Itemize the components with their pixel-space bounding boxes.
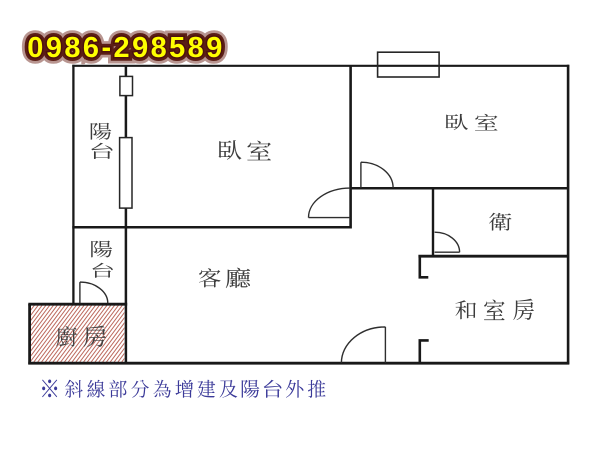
svg-text:0986-298589: 0986-298589 — [27, 32, 222, 64]
